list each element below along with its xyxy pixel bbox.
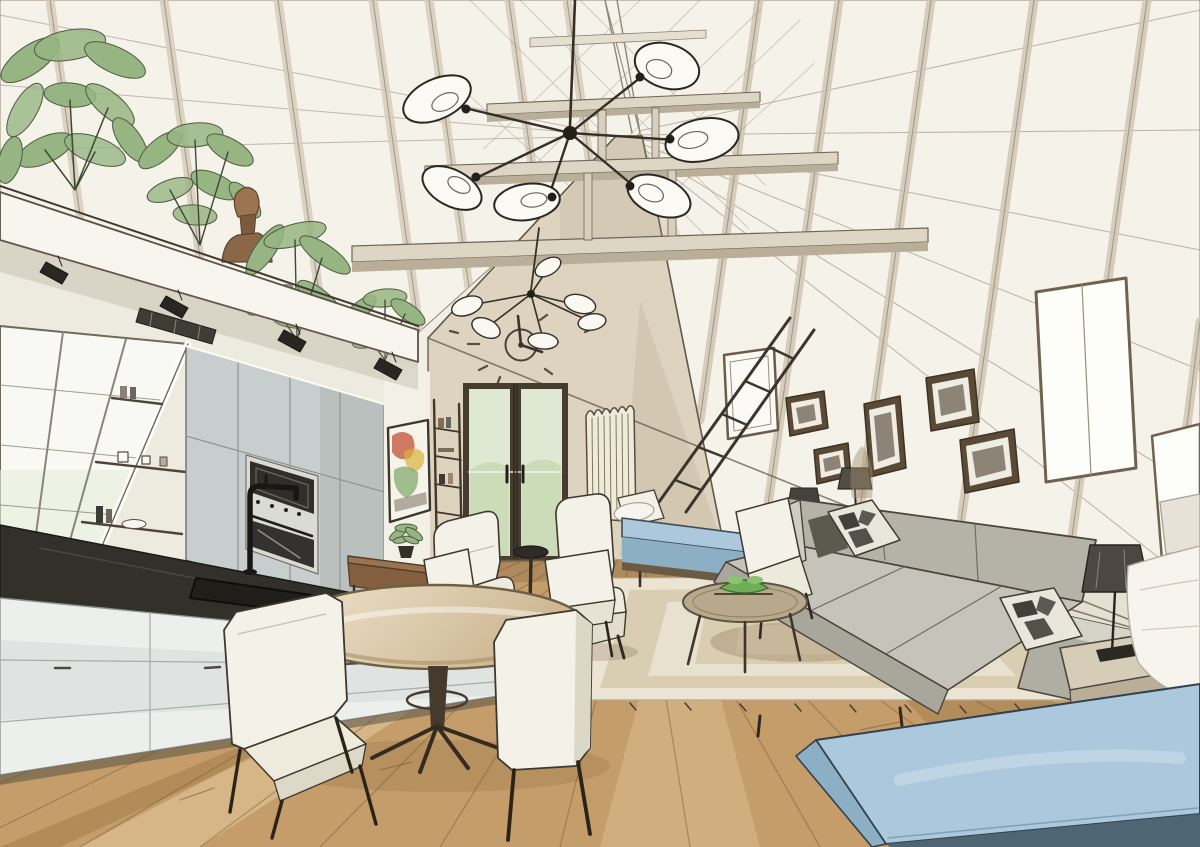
artwork-canvas [0, 0, 1200, 847]
shelf-item-2 [446, 417, 451, 428]
clock-center [518, 342, 524, 348]
small-chandelier-hub [527, 290, 535, 298]
oven-knob-1 [256, 500, 260, 504]
shelf-item-4 [439, 474, 445, 484]
bowl [122, 520, 146, 529]
oven-knob-4 [297, 512, 301, 516]
side-table-top [514, 546, 548, 558]
frame-4 [926, 369, 979, 431]
oven-knob-2 [270, 504, 274, 508]
oven-knob-3 [284, 508, 288, 512]
frame-1 [786, 391, 828, 436]
shelf-item-3 [438, 448, 454, 452]
loft-interior-sketch [0, 0, 1200, 847]
king-post-2 [652, 108, 659, 158]
cup [142, 456, 150, 464]
shelf-book-1 [120, 386, 127, 398]
green-bowl-leaf-2 [747, 576, 763, 584]
wall-artwork [388, 420, 430, 522]
jar [160, 457, 167, 466]
bed-pillow [1160, 494, 1200, 554]
green-bowl-leaf-1 [727, 576, 743, 584]
frame-5 [960, 429, 1019, 493]
queen-post-1 [584, 173, 592, 240]
shelf-item-5 [448, 473, 453, 484]
shelf-item-1 [438, 418, 444, 428]
bottle-gray [106, 509, 112, 523]
garden-view-right [521, 459, 561, 556]
shelf-book-2 [130, 387, 136, 399]
bottle-dark [96, 506, 103, 523]
faucet-base [243, 569, 257, 575]
mug [118, 452, 128, 462]
